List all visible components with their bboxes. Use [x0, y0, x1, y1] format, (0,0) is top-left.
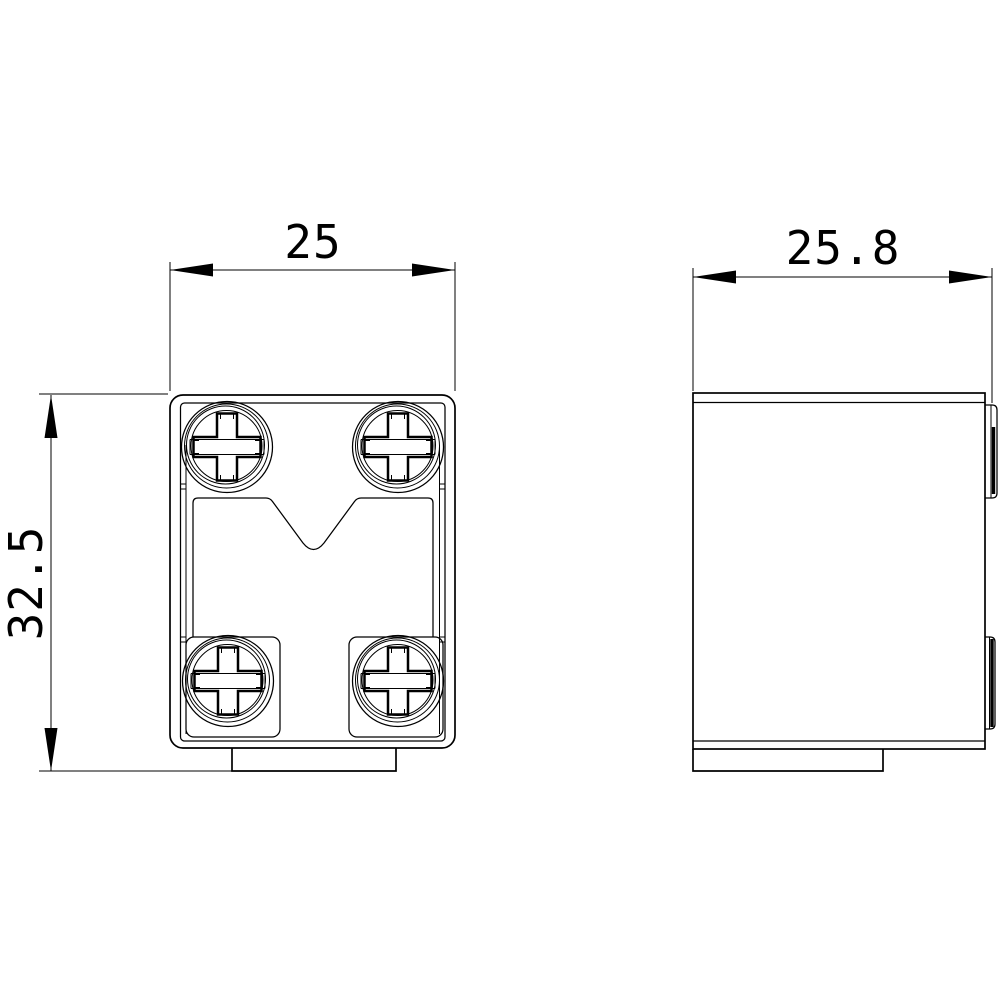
mounting-foot-front: [232, 748, 396, 771]
technical-drawing: 25 25.8 32.5: [0, 0, 1000, 1000]
front-view: [170, 395, 455, 771]
side-view: [693, 393, 997, 771]
dim-side-width-extension-lines: [693, 268, 992, 403]
dim-front-height-label: 32.5: [0, 526, 53, 641]
screw-top-left: [182, 402, 273, 493]
clamp-cavity-panel: [193, 498, 433, 637]
dim-front-width-arrow-left: [170, 264, 213, 277]
dim-front-width-label: 25: [284, 215, 341, 269]
side-body-outline: [693, 393, 985, 749]
side-clip-top: [985, 405, 997, 498]
screw-bottom-left: [183, 636, 274, 727]
dim-side-width-label: 25.8: [786, 221, 901, 275]
side-clip-bottom: [985, 637, 995, 729]
dim-side-width-arrow-right: [949, 271, 992, 284]
dim-side-width: 25.8: [693, 221, 992, 403]
front-inner-frame: [181, 403, 446, 741]
front-body-outline: [170, 395, 455, 748]
dim-front-width: 25: [170, 215, 455, 391]
drawing-svg: 25 25.8 32.5: [0, 0, 1000, 1000]
screw-top-right: [353, 402, 444, 493]
screw-bottom-right: [353, 636, 444, 727]
dim-side-width-arrow-left: [693, 271, 736, 284]
dim-front-height-arrow-top: [45, 395, 58, 438]
mounting-foot-side: [693, 749, 883, 771]
dim-front-width-arrow-right: [412, 264, 455, 277]
dim-front-height-arrow-bottom: [45, 728, 58, 771]
dim-front-width-extension-lines: [170, 262, 455, 391]
